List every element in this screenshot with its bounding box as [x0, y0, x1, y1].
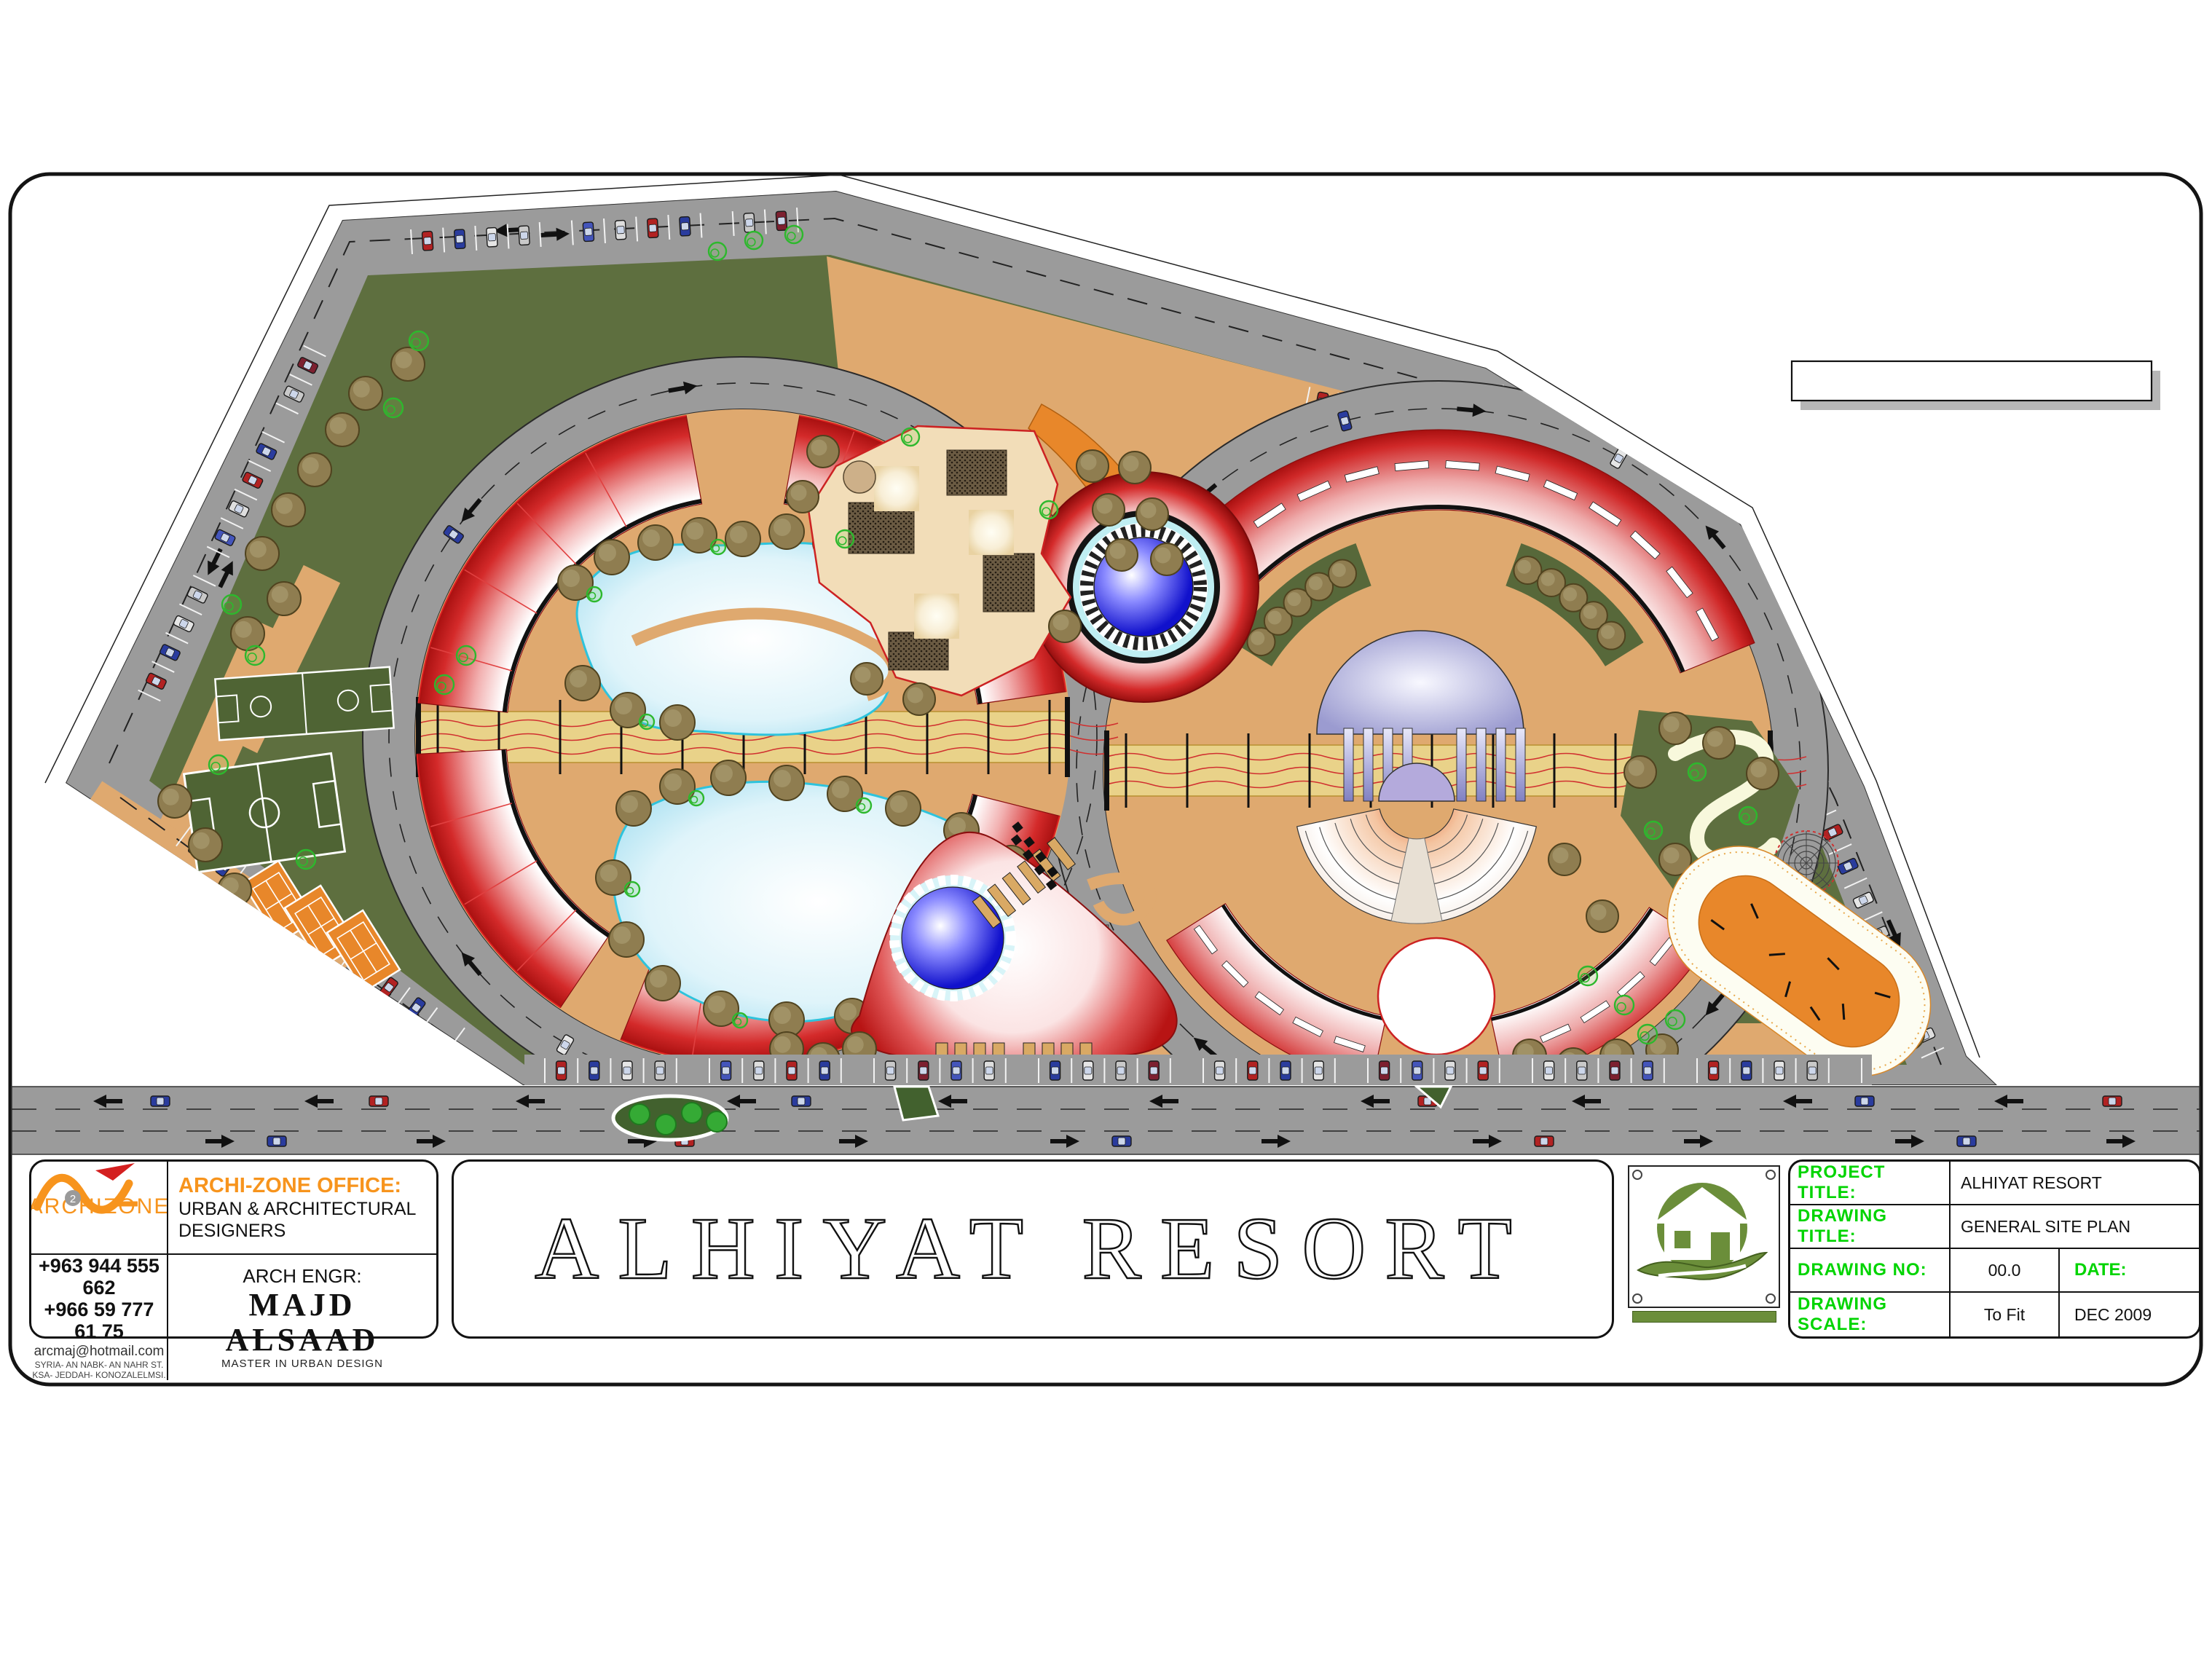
office-name: ARCHI-ZONE OFFICE:	[168, 1174, 436, 1198]
office-desc-1: URBAN & ARCHITECTURAL	[168, 1198, 436, 1220]
svg-text:2: 2	[70, 1193, 76, 1205]
building-description-table	[1792, 361, 2160, 410]
main-title-text: ALHIYAT RESORT	[535, 1198, 1531, 1300]
office-email: arcmaj@hotmail.com	[34, 1344, 165, 1360]
architect-name: MAJD ALSAAD	[168, 1288, 436, 1358]
drawing-scale-value: To Fit	[1949, 1293, 2058, 1336]
office-contact-cell: +963 944 555 662 +966 59 777 61 75 arcma…	[31, 1255, 167, 1380]
office-address-1: SYRIA- AN NABK- AN NAHR ST.	[35, 1360, 164, 1370]
date-value: DEC 2009	[2058, 1293, 2199, 1336]
bottom-parking	[524, 1055, 1872, 1087]
drawing-scale-row: DRAWING SCALE: To Fit DEC 2009	[1790, 1293, 2199, 1336]
drawing-info-block: PROJECT TITLE: ALHIYAT RESORT DRAWING TI…	[1788, 1159, 2201, 1339]
drawing-title-label: DRAWING TITLE:	[1790, 1206, 1949, 1247]
project-title-value: ALHIYAT RESORT	[1949, 1162, 2199, 1204]
architect-cell: ARCH ENGR: MAJD ALSAAD MASTER IN URBAN D…	[168, 1255, 436, 1380]
archizone-logo-icon: 2	[31, 1162, 141, 1216]
drawing-sheet: 2 ARCHIZONE +963 944 555 662 +966 59 777…	[0, 0, 2212, 1678]
date-label: DATE:	[2058, 1249, 2199, 1291]
drawing-no-label: DRAWING NO:	[1790, 1260, 1949, 1280]
office-phone-2: +966 59 777 61 75	[31, 1299, 167, 1342]
architect-degree: MASTER IN URBAN DESIGN	[221, 1358, 383, 1370]
archizone-logo-cell: 2 ARCHIZONE	[31, 1162, 167, 1255]
logo-underline-bar	[1632, 1311, 1776, 1323]
resort-logo-plate	[1628, 1165, 1780, 1308]
office-desc-2: DESIGNERS	[168, 1220, 436, 1242]
project-title-label: PROJECT TITLE:	[1790, 1162, 1949, 1203]
architect-label: ARCH ENGR:	[243, 1265, 361, 1288]
site-plan-drawing	[0, 0, 2212, 1678]
drawing-no-value: 00.0	[1949, 1249, 2058, 1291]
office-phone-1: +963 944 555 662	[31, 1255, 167, 1299]
mall-plaza	[1378, 938, 1495, 1055]
main-title-block: ALHIYAT RESORT	[452, 1159, 1614, 1339]
office-name-cell: ARCHI-ZONE OFFICE: URBAN & ARCHITECTURAL…	[168, 1162, 436, 1255]
drawing-no-row: DRAWING NO: 00.0 DATE:	[1790, 1249, 2199, 1293]
drawing-scale-label: DRAWING SCALE:	[1790, 1294, 1949, 1335]
resort-logo-block	[1628, 1165, 1781, 1333]
drawing-title-value: GENERAL SITE PLAN	[1949, 1205, 2199, 1248]
drawing-title-row: DRAWING TITLE: GENERAL SITE PLAN	[1790, 1205, 2199, 1249]
office-address-2: KSA- JEDDAH- KONOZALELMSI.	[32, 1370, 165, 1380]
project-title-row: PROJECT TITLE: ALHIYAT RESORT	[1790, 1162, 2199, 1205]
main-highway	[12, 1087, 2200, 1154]
green-house-logo-icon	[1629, 1167, 1776, 1304]
office-title-block: 2 ARCHIZONE +963 944 555 662 +966 59 777…	[29, 1159, 438, 1339]
